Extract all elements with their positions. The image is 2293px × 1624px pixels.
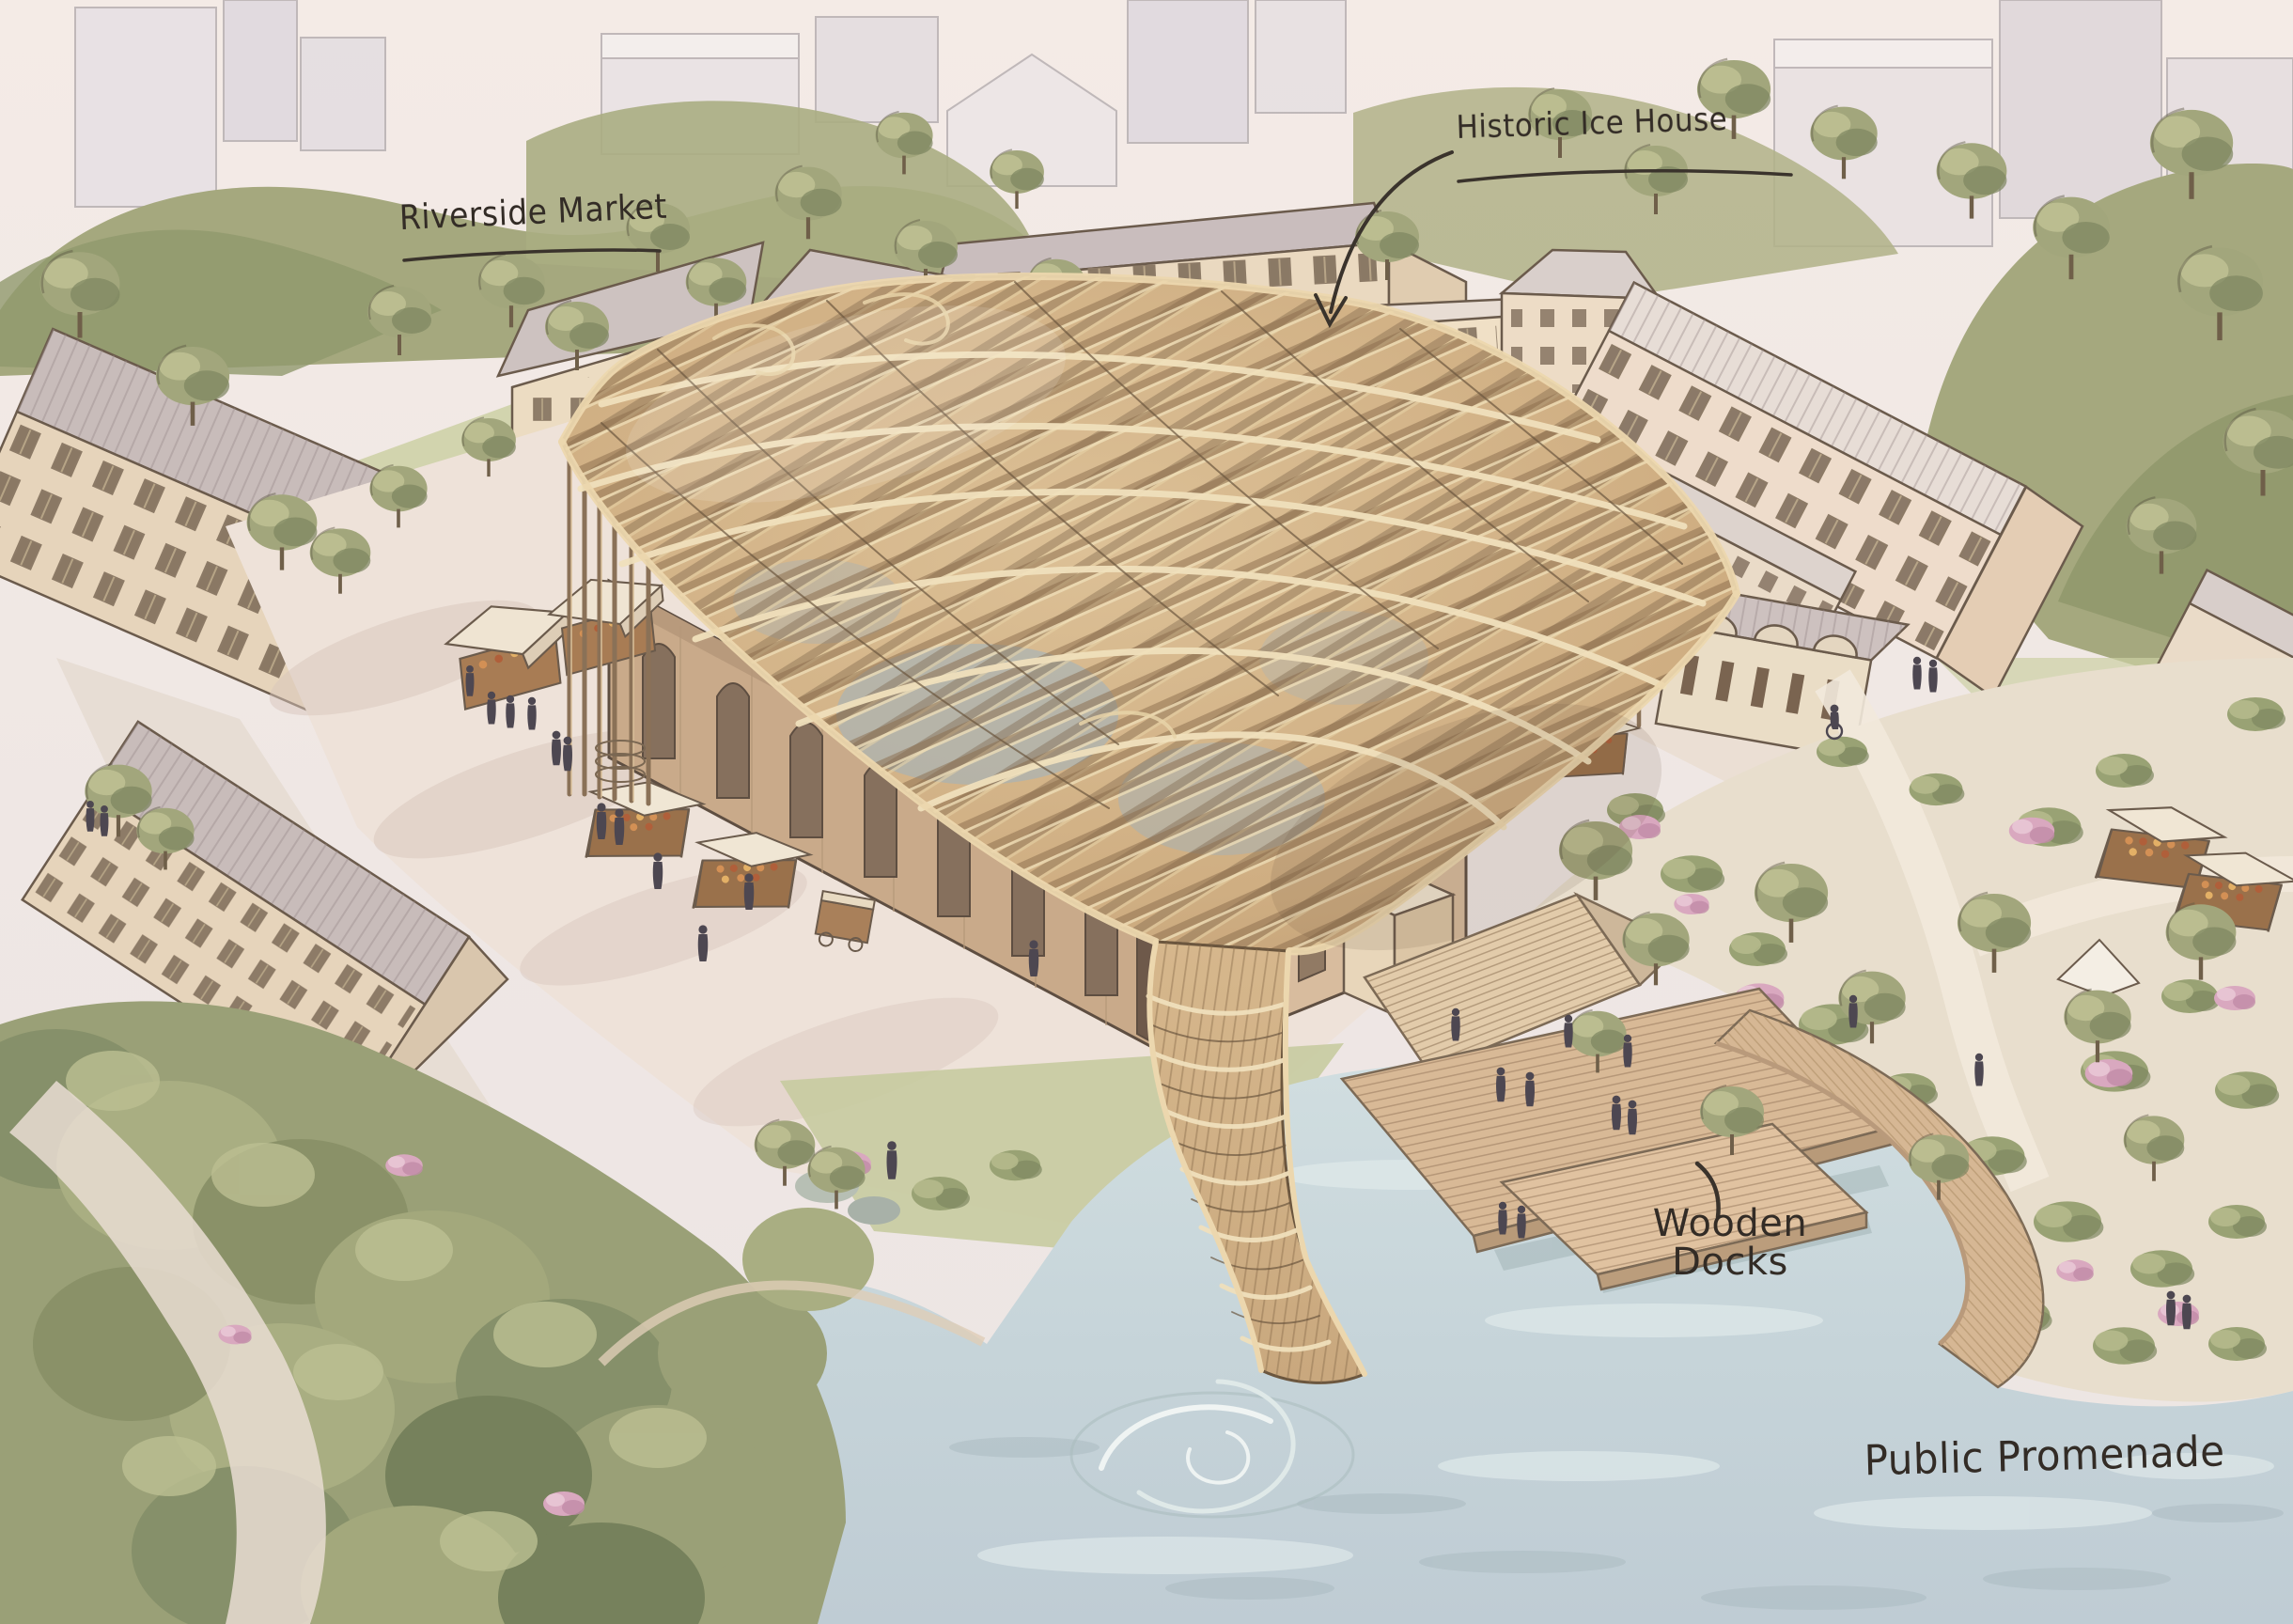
label-public-promenade: Public Promenade bbox=[1864, 1427, 2225, 1485]
label-wooden-docks: Wooden Docks bbox=[1650, 1205, 1810, 1282]
label-wooden-docks-line2: Docks bbox=[1672, 1241, 1788, 1284]
illustration-canvas bbox=[0, 0, 2293, 1624]
label-wooden-docks-line1: Wooden bbox=[1653, 1202, 1808, 1245]
illustration-scene: Riverside Market Historic Ice House Wood… bbox=[0, 0, 2293, 1624]
